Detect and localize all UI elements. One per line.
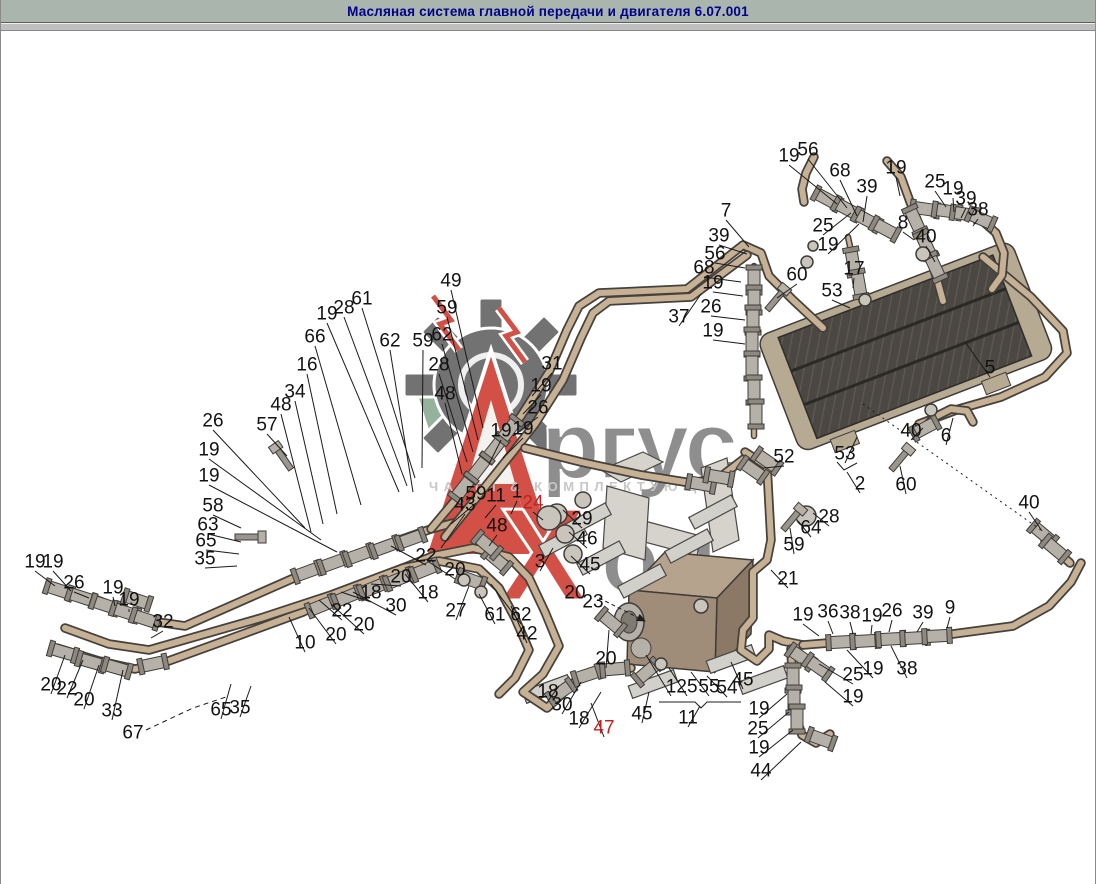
oil-cooler xyxy=(757,240,1060,464)
fitting-icon xyxy=(789,704,805,734)
fitting-icon xyxy=(599,660,630,679)
titlebar-divider xyxy=(1,22,1095,31)
fitting-icon xyxy=(868,215,902,243)
fitting-icon xyxy=(100,656,133,680)
bolt-icon xyxy=(887,442,916,473)
fitting-icon xyxy=(922,627,953,645)
diagram-canvas: ргус Х од ЧАСТИ & КОМПЛЕКТУЮЩИЕ xyxy=(1,0,1096,884)
fitting-icon xyxy=(748,399,764,429)
page-title: Масляная система главной передачи и двиг… xyxy=(347,4,749,19)
fitting-icon xyxy=(804,726,838,751)
fitting-icon xyxy=(137,653,170,675)
window-title-bar[interactable]: Масляная система главной передачи и двиг… xyxy=(1,0,1095,22)
fitting-icon xyxy=(570,663,603,687)
catalog-window: { "window": { "title": "Масляная система… xyxy=(0,0,1096,884)
fitting-icon xyxy=(394,526,428,551)
